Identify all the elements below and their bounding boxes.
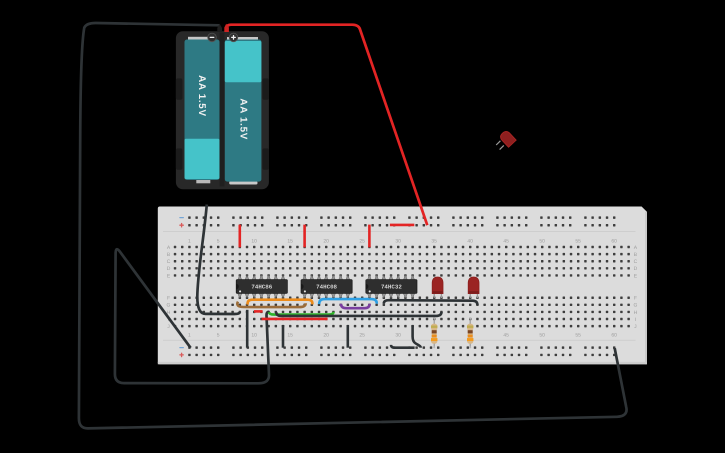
svg-text:60: 60	[611, 238, 617, 244]
svg-text:74HC08: 74HC08	[316, 284, 337, 291]
svg-text:15: 15	[287, 333, 293, 339]
svg-text:60: 60	[611, 333, 617, 339]
svg-text:40: 40	[467, 238, 473, 244]
svg-text:C: C	[634, 259, 638, 265]
svg-text:74HC32: 74HC32	[381, 284, 402, 291]
svg-text:25: 25	[359, 238, 365, 244]
svg-text:H: H	[634, 310, 638, 316]
svg-text:AA 1.5V: AA 1.5V	[237, 98, 248, 140]
svg-text:45: 45	[503, 333, 509, 339]
svg-text:50: 50	[539, 238, 545, 244]
svg-text:10: 10	[251, 333, 257, 339]
svg-text:1: 1	[188, 333, 191, 339]
svg-text:20: 20	[323, 238, 329, 244]
svg-text:G: G	[167, 303, 171, 309]
svg-text:10: 10	[251, 238, 257, 244]
svg-text:50: 50	[539, 333, 545, 339]
svg-text:20: 20	[323, 333, 329, 339]
svg-text:D: D	[634, 266, 638, 272]
svg-text:I: I	[635, 317, 636, 323]
svg-text:1: 1	[188, 238, 191, 244]
svg-text:15: 15	[287, 238, 293, 244]
svg-text:5: 5	[217, 333, 220, 339]
svg-text:F: F	[167, 296, 170, 302]
svg-text:55: 55	[575, 333, 581, 339]
svg-text:45: 45	[503, 238, 509, 244]
svg-text:25: 25	[359, 333, 365, 339]
svg-text:55: 55	[575, 238, 581, 244]
svg-text:D: D	[167, 266, 171, 272]
svg-text:35: 35	[431, 238, 437, 244]
svg-text:C: C	[167, 259, 171, 265]
svg-text:30: 30	[395, 238, 401, 244]
svg-text:G: G	[633, 303, 637, 309]
svg-text:F: F	[634, 296, 637, 302]
svg-text:30: 30	[395, 333, 401, 339]
svg-text:AA 1.5V: AA 1.5V	[196, 75, 207, 117]
svg-text:74HC86: 74HC86	[251, 284, 272, 291]
svg-text:5: 5	[217, 238, 220, 244]
